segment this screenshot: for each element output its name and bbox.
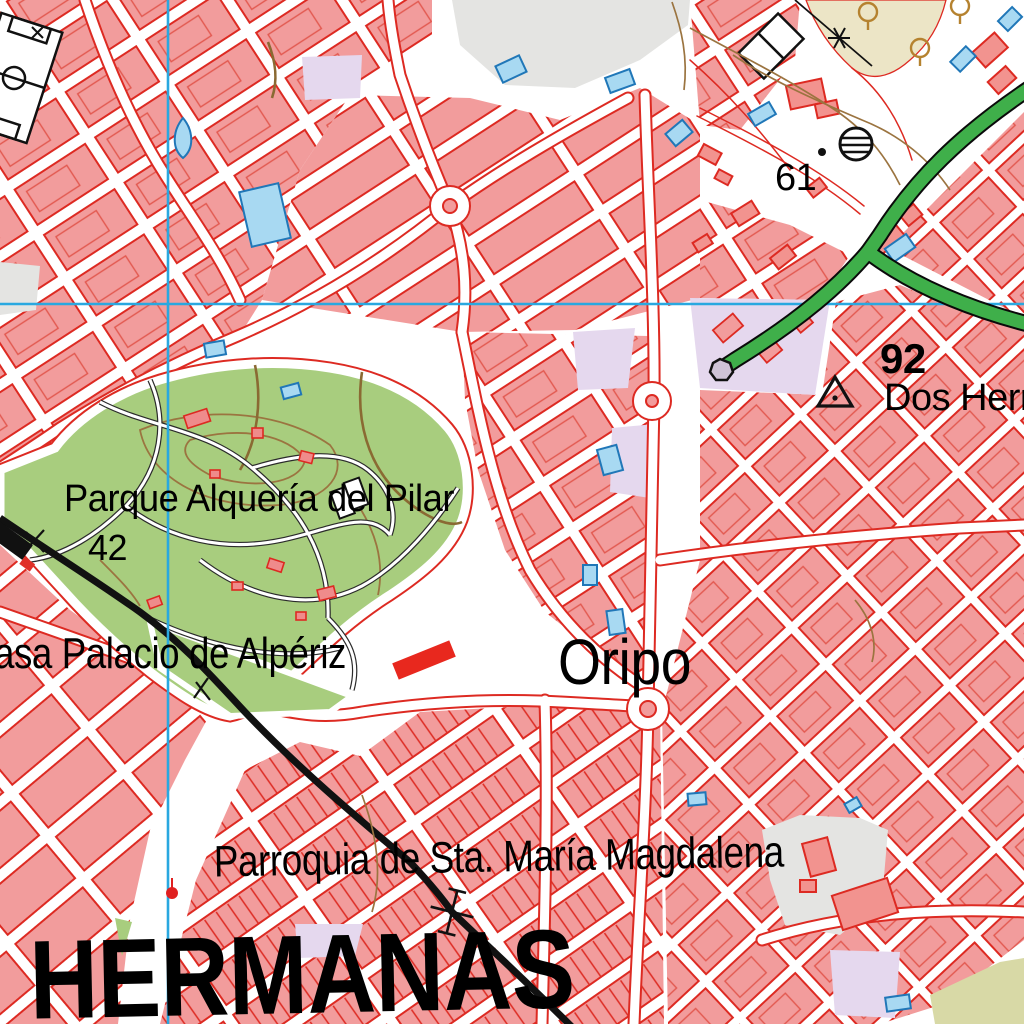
roundabout (430, 186, 470, 226)
purple-zone-2 (573, 328, 635, 390)
map-canvas[interactable]: Parque Alquería del Pilar 42 asa Palacio… (0, 0, 1024, 1024)
gray-zone-left (0, 262, 40, 315)
purple-zone-6 (302, 55, 362, 100)
city-label: HERMANAS (28, 906, 575, 1024)
elevation-92-label: 92 (880, 335, 926, 382)
map-viewport: Parque Alquería del Pilar 42 asa Palacio… (0, 0, 1024, 1024)
church-label: Parroquia de Sta. María Magdalena (213, 828, 785, 887)
district-label: Oripo (558, 626, 691, 698)
park-elevation-label: 42 (88, 527, 127, 568)
spot-height-dot (818, 148, 826, 156)
roundabout (633, 382, 671, 420)
place-label: Dos Herm (884, 377, 1024, 419)
elevation-61-label: 61 (775, 157, 816, 199)
palace-label: asa Palacio de Alpériz (0, 629, 346, 678)
highway-terminus-icon (710, 359, 733, 380)
water-tower-icon (840, 128, 872, 160)
park-label: Parque Alquería del Pilar (64, 478, 455, 520)
